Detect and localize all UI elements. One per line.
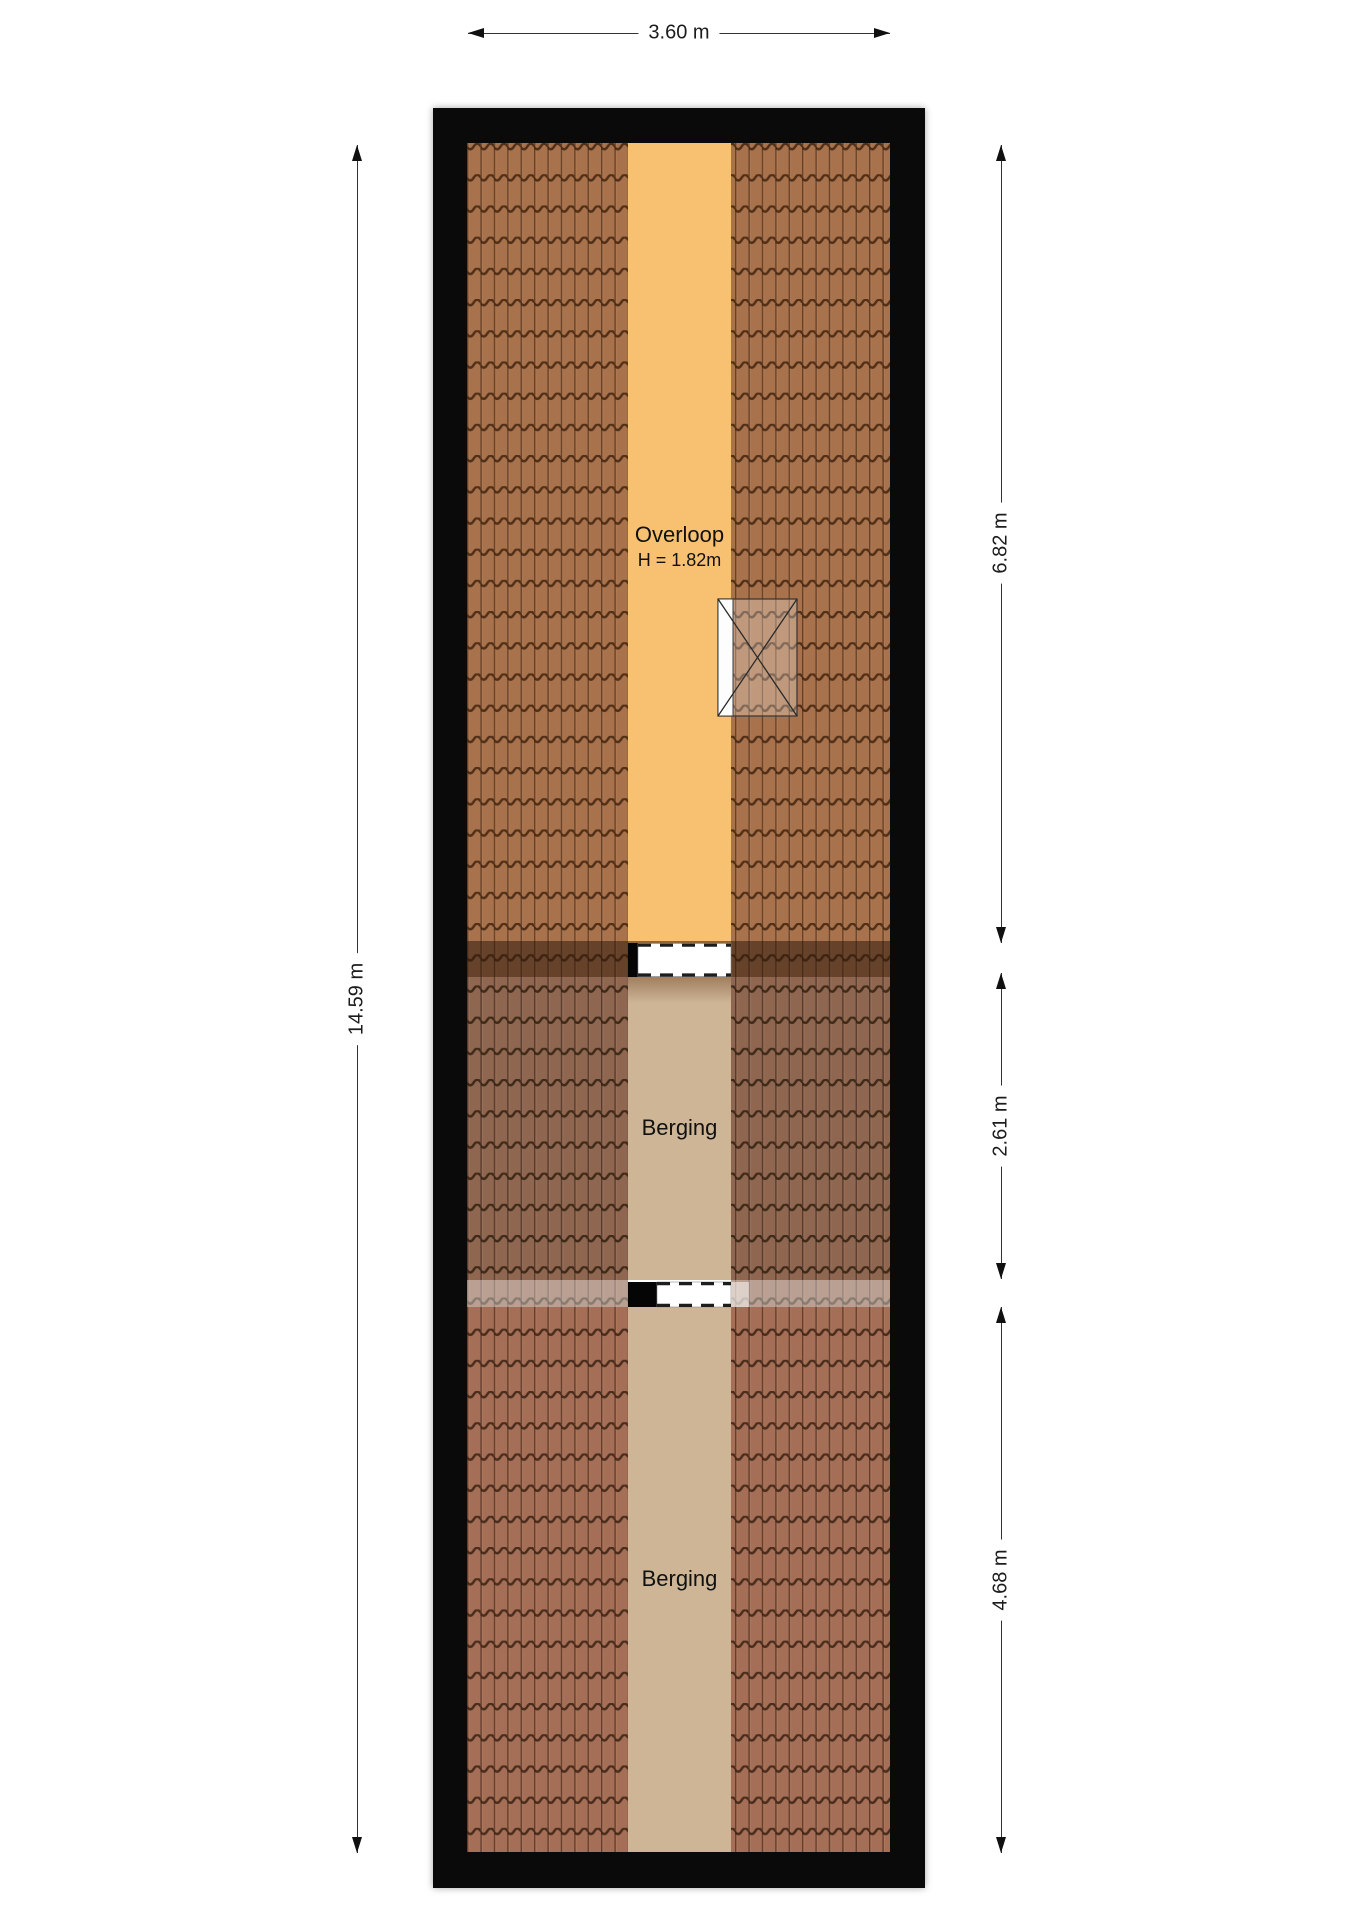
dimension-label: 3.60 m	[638, 21, 719, 46]
plan-interior	[467, 143, 890, 1852]
roof-tiles-top-right	[731, 143, 890, 977]
arrow-up-icon	[352, 145, 362, 161]
roof-tiles-bottom-left	[467, 1307, 628, 1852]
arrow-right-icon	[874, 28, 890, 38]
arrow-up-icon	[996, 1307, 1006, 1323]
roof-tiles-middle-left	[467, 977, 628, 1307]
door-opening-1	[628, 943, 731, 977]
overloop-room-label: Overloop	[628, 523, 731, 547]
overloop-height-note: H = 1.82m	[628, 551, 731, 571]
door-opening-2	[628, 1282, 749, 1307]
door1-floor-shadow	[628, 977, 731, 1003]
dimension-label: 6.82 m	[989, 502, 1014, 583]
door2-jamb	[628, 1282, 657, 1307]
roof-tiles-bottom-right	[731, 1307, 890, 1852]
arrow-left-icon	[468, 28, 484, 38]
door2-overhang	[731, 1282, 749, 1307]
arrow-up-icon	[996, 973, 1006, 989]
arrow-down-icon	[996, 1837, 1006, 1853]
dimension-label: 14.59 m	[345, 953, 370, 1045]
dimension-label: 2.61 m	[989, 1085, 1014, 1166]
page: { "floorplan": { "rooms": { "overloop": …	[0, 0, 1358, 1920]
arrow-up-icon	[996, 145, 1006, 161]
dimension-label: 4.68 m	[989, 1539, 1014, 1620]
skylight-window-icon	[718, 599, 797, 716]
door1-leaf	[638, 944, 731, 977]
door2-leaf	[657, 1282, 731, 1307]
door1-jamb	[628, 943, 638, 977]
berging-middle-room-label: Berging	[628, 1116, 731, 1140]
arrow-down-icon	[996, 927, 1006, 943]
arrow-down-icon	[996, 1263, 1006, 1279]
berging-bottom-room-label: Berging	[628, 1567, 731, 1591]
plan-graphic	[467, 143, 890, 1852]
roof-tiles-top-left	[467, 143, 628, 977]
arrow-down-icon	[352, 1837, 362, 1853]
roof-tiles-middle-right	[731, 977, 890, 1307]
